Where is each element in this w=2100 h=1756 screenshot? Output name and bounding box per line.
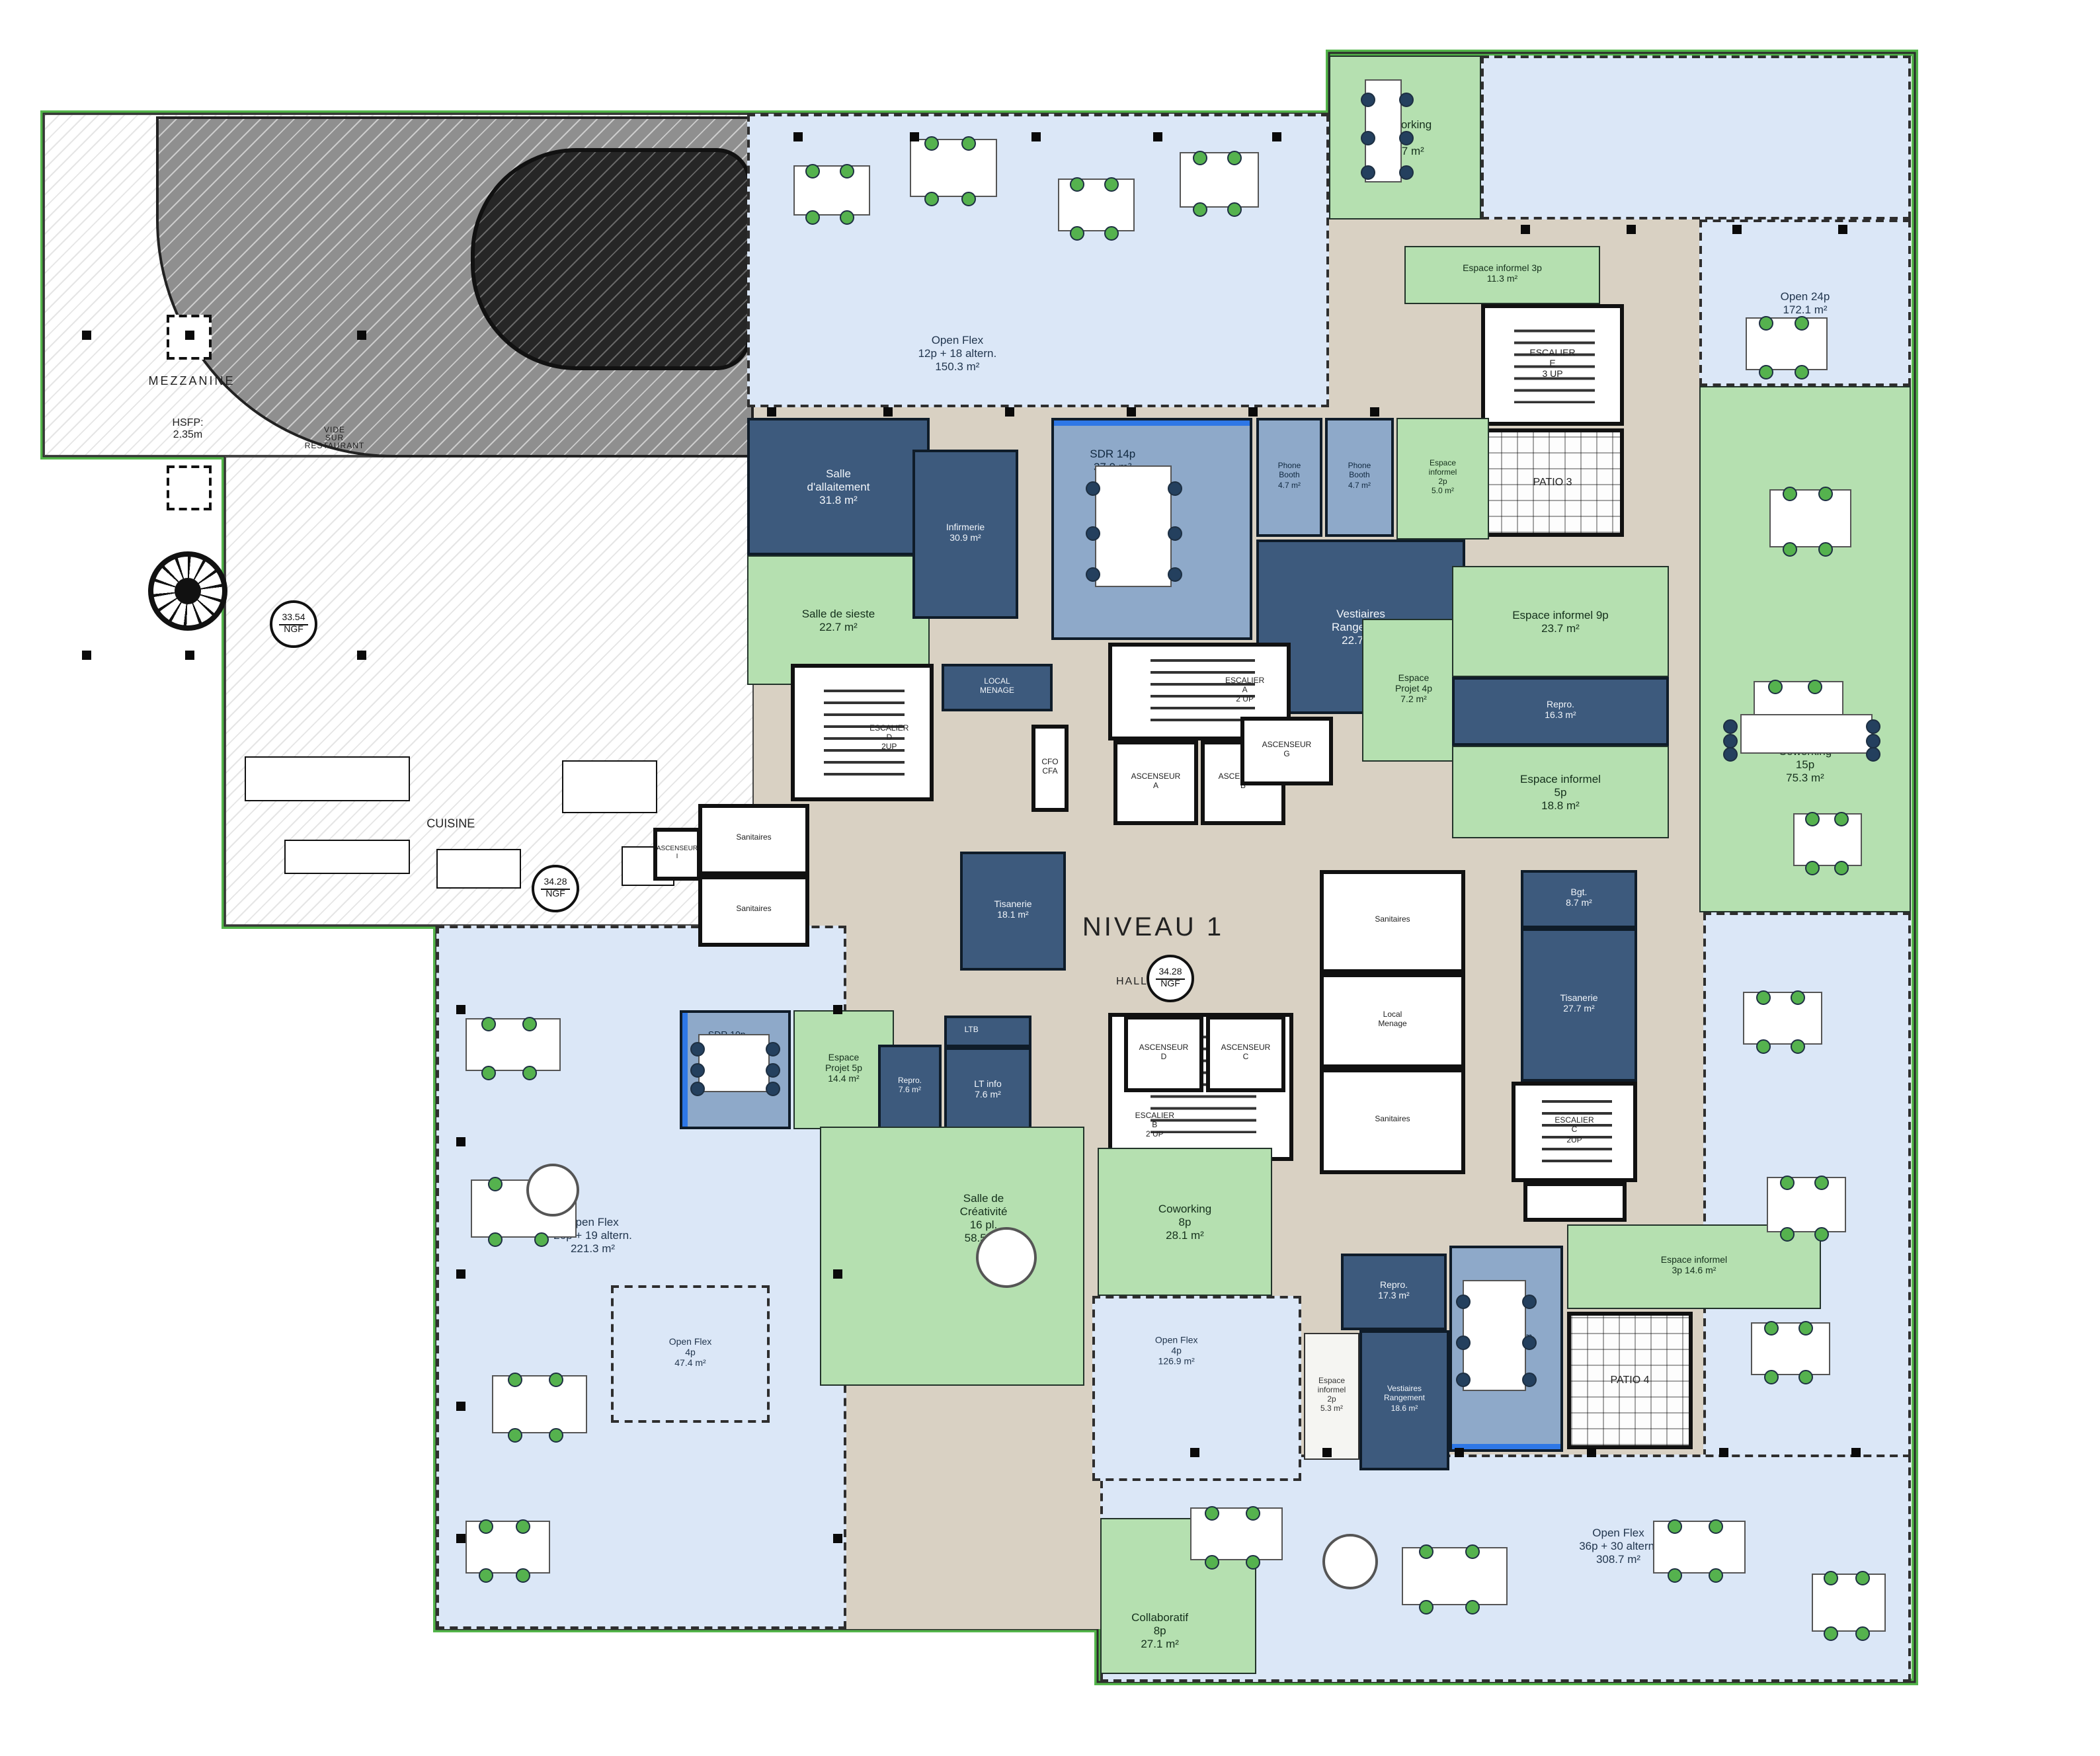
hall-label: HALL [1116,975,1148,987]
room-cfo-cfa: CFOCFA [1031,725,1069,812]
room-espace-informel-2p-south: Espaceinformel2p5.3 m² [1304,1333,1359,1460]
structural-column-dot [767,407,776,417]
structural-column-dot [185,331,194,340]
structural-column-dot [1031,132,1041,141]
escalier-a-label: ESCALIER [1225,678,1264,687]
structural-column-dot [357,651,366,660]
room-lt-info: LT info7.6 m² [944,1047,1031,1135]
chair-green-icon [1668,1519,1682,1533]
ltb-label: LTB [965,1027,979,1036]
open-flex-north-label: 150.3 m² [918,360,997,373]
chair-green-icon [1759,365,1773,379]
ngf-hall-unit: NGF [1160,979,1180,989]
structural-column-dot [1455,1448,1464,1457]
structural-column-dot [456,1402,465,1411]
chair-dark-icon [1455,1295,1470,1309]
structural-column-dot [1521,225,1530,234]
vide-sur-restaurant-label: VIDE SUR RESTAURANT [305,427,364,451]
salle-allaitement-label: d'allaitement [807,480,870,493]
desk-cluster [910,139,997,197]
chair-green-icon [1814,1175,1829,1189]
sanitaires-central-2-label: Sanitaires [1375,1117,1410,1126]
salle-de-sieste-label: Salle de sieste [802,607,875,620]
open-flex-north-label: Open Flex [918,333,997,346]
espace-projet-5p-label: Projet 5p [825,1064,862,1076]
room-ascenseur-c: ASCENSEURC [1206,1016,1285,1092]
structural-column-dot [185,651,194,660]
room-tisanerie-18: Tisanerie18.1 m² [960,852,1066,971]
espace-informel-2p-south-label: informel [1318,1387,1346,1396]
chair-dark-icon [1086,526,1100,541]
desk-cluster [793,165,870,216]
ngf-hall-value: 34.28 [1156,968,1184,979]
chair-dark-icon [1399,165,1414,180]
phone-booth-2-label: Booth [1348,473,1371,482]
spiral-stair-icon [148,551,227,631]
chair-green-icon [839,210,854,225]
structural-column-dot [1127,407,1136,417]
mezzanine-label: MEZZANINE [148,374,235,387]
espace-informel-9p-label: 23.7 m² [1512,621,1609,635]
collaboratif-8p-label: 8p [1131,1623,1188,1636]
tisanerie-27-label: Tisanerie [1560,994,1597,1006]
chair-dark-icon [1361,93,1376,107]
room-escalier-e: ESCALIERE3 UP [1481,304,1624,426]
structural-column-dot [1272,132,1281,141]
room-salle-allaitement: Salled'allaitement31.8 m² [747,418,930,555]
chair-green-icon [487,1177,502,1192]
structural-column-dot [456,1534,465,1543]
chair-dark-icon [766,1063,780,1078]
salle-creativite-label: Créativité [960,1205,1008,1218]
chair-green-icon [1807,679,1822,694]
room-phone-booth-1: PhoneBooth4.7 m² [1256,418,1322,537]
chair-green-icon [1070,177,1085,191]
vestiaires-rangement-south-label: Vestiaires [1384,1386,1425,1396]
bgt-label: Bgt. [1566,889,1592,900]
chair-green-icon [1824,1572,1838,1586]
escalier-b-label: B [1135,1121,1174,1131]
round-table [1322,1534,1378,1589]
open-flex-4p-126-label: Open Flex [1155,1336,1198,1347]
espace-projet-4p-label: 7.2 m² [1395,696,1432,707]
room-ascenseur-a: ASCENSEURA [1113,740,1198,825]
room-repro-16: Repro.16.3 m² [1452,677,1669,746]
room-escalier-c-annex [1523,1182,1627,1222]
chair-green-icon [507,1427,522,1442]
chair-dark-icon [1168,567,1182,581]
meeting-table [1365,79,1402,182]
espace-projet-4p-label: Espace [1395,674,1432,685]
room-infirmerie: Infirmerie30.9 m² [912,450,1018,619]
phone-booth-1-label: Booth [1278,473,1301,482]
open-flex-4p-47-label: 47.4 m² [669,1359,712,1371]
ascenseur-g-label: ASCENSEUR [1262,742,1312,751]
structural-column-dot [1190,1448,1199,1457]
chair-green-icon [839,164,854,179]
chair-green-icon [1834,811,1849,826]
coworking-15p-label: 75.3 m² [1779,771,1832,784]
espace-informel-3p-north-label: 11.3 m² [1463,275,1542,286]
room-ascenseur-g: ASCENSEURG [1240,717,1333,785]
room-salle-creativite: Salle deCréativité16 pl.58.5 m² [820,1127,1084,1386]
structural-column-dot [1587,1448,1596,1457]
chair-green-icon [1856,1572,1871,1586]
floorplan-niveau-1: Open Flex12p + 18 altern.150.3 m²Open 24… [0,0,2100,1756]
espace-informel-5p-label: 5p [1520,785,1601,799]
structural-column-dot [1732,225,1742,234]
chair-green-icon [1795,315,1809,330]
repro-17-label: Repro. [1378,1281,1409,1293]
chair-green-icon [522,1066,537,1080]
chair-green-icon [1418,1599,1433,1614]
chair-green-icon [1779,1227,1794,1242]
room-repro-7: Repro.7.6 m² [878,1045,942,1129]
escalier-a-label: 2 UP [1225,696,1264,705]
structural-column-dot [833,1269,842,1279]
chair-green-icon [487,1232,502,1246]
chair-green-icon [1768,679,1783,694]
chair-green-icon [1246,1505,1260,1520]
mezzanine-dashed-square [167,465,212,510]
structural-column-dot [1627,225,1636,234]
structural-column-dot [793,132,803,141]
chair-green-icon [1418,1545,1433,1560]
desk-cluster [1812,1574,1886,1632]
chair-green-icon [1798,1320,1813,1335]
chair-green-icon [962,137,977,151]
espace-informel-2p-north-label: Espace [1429,460,1457,469]
espace-projet-5p-label: Espace [825,1053,862,1064]
meeting-table [1740,714,1873,754]
collaboratif-8p-label: 27.1 m² [1131,1636,1188,1650]
chair-green-icon [1791,1039,1805,1054]
chair-green-icon [924,191,938,206]
round-table [976,1227,1037,1288]
chair-green-icon [1783,541,1797,556]
round-table [526,1164,579,1217]
chair-green-icon [1763,1370,1778,1384]
escalier-c-label: 2UP [1555,1137,1594,1146]
local-menage-1-label: MENAGE [980,688,1014,697]
chair-green-icon [1804,811,1819,826]
chair-green-icon [1818,541,1833,556]
infirmerie-label: Infirmerie [946,524,985,535]
vestiaires-rangement-north-label: Vestiaires [1332,607,1390,620]
room-espace-informel-3p-north: Espace informel 3p11.3 m² [1404,246,1600,304]
chair-dark-icon [1522,1295,1537,1309]
hsfp-label: HSFP: 2.35m [172,417,203,440]
room-sanitaires-central-1: Sanitaires [1320,870,1465,973]
chair-green-icon [1246,1555,1260,1570]
chair-green-icon [1759,315,1773,330]
escalier-d-label: D [869,735,909,744]
structural-column-dot [1851,1448,1861,1457]
chair-dark-icon [1866,734,1880,748]
sanitaires-central-1-label: Sanitaires [1375,917,1410,926]
chair-green-icon [1791,990,1805,1004]
room-open-24p-band [1481,56,1911,219]
coworking-8p-label: 28.1 m² [1158,1228,1211,1242]
repro-17-label: 17.3 m² [1378,1292,1409,1303]
cfo-cfa-label: CFO [1041,759,1058,768]
chair-dark-icon [1522,1373,1537,1387]
room-vestiaires-rangement-south: VestiairesRangement18.6 m² [1359,1330,1449,1470]
tisanerie-18-label: Tisanerie [994,900,1031,912]
chair-dark-icon [690,1063,704,1078]
repro-16-label: 16.3 m² [1545,711,1576,723]
chair-dark-icon [1086,481,1100,496]
structural-column-dot [1005,407,1014,417]
escalier-b-label: ESCALIER [1135,1112,1174,1121]
structural-column-dot [883,407,893,417]
chair-green-icon [1227,150,1242,165]
room-escalier-d: ESCALIERD2UP [791,664,934,801]
cfo-cfa-label: CFA [1041,768,1058,778]
espace-informel-2p-south-label: Espace [1318,1378,1346,1387]
chair-green-icon [534,1232,549,1246]
room-bgt: Bgt.8.7 m² [1521,870,1637,928]
chair-green-icon [1192,150,1207,165]
room-espace-informel-9p: Espace informel 9p23.7 m² [1452,566,1669,677]
chair-green-icon [1205,1505,1219,1520]
salle-creativite-label: Salle de [960,1191,1008,1205]
ngf-cuisine-unit: NGF [545,889,565,899]
bgt-label: 8.7 m² [1566,899,1592,910]
espace-informel-3p-north-label: Espace informel 3p [1463,264,1542,276]
chair-green-icon [1709,1519,1723,1533]
chair-green-icon [1756,990,1770,1004]
room-espace-informel-5p: Espace informel5p18.8 m² [1452,746,1669,838]
chair-green-icon [479,1519,494,1533]
structural-column-dot [82,331,91,340]
chair-green-icon [1783,487,1797,502]
open-flex-se-label: 308.7 m² [1579,1552,1658,1566]
open-flex-se-label: Open Flex [1579,1526,1658,1539]
salle-de-sieste-label: 22.7 m² [802,620,875,633]
room-patio-3: PATIO 3 [1481,428,1624,537]
desk-cluster [1746,317,1828,370]
chair-green-icon [1709,1568,1723,1583]
ngf-cuisine-value: 34.28 [541,878,569,889]
open-flex-4p-47-label: 4p [669,1349,712,1360]
chair-green-icon [1465,1599,1480,1614]
repro-7-label: Repro. [898,1078,922,1087]
espace-informel-3p-south-label: 3p 14.6 m² [1661,1267,1727,1278]
cuisine-label: CUISINE [426,817,475,830]
desk-cluster [1190,1507,1283,1560]
meeting-table [1095,465,1172,587]
chair-green-icon [1798,1370,1813,1384]
chair-green-icon [962,191,977,206]
ngf-cuisine: 34.28NGF [532,865,579,912]
structural-column-dot [1153,132,1162,141]
tisanerie-27-label: 27.7 m² [1560,1005,1597,1016]
coworking-15p-label: 15p [1779,758,1832,771]
escalier-d-label: ESCALIER [869,725,909,735]
escalier-e-label: E [1529,360,1575,371]
espace-informel-3p-south-label: Espace informel [1661,1256,1727,1267]
room-sanitaires-central-2: Sanitaires [1320,1068,1465,1174]
patio-3-label: PATIO 3 [1533,477,1572,489]
chair-dark-icon [1399,93,1414,107]
espace-informel-2p-north-label: 2p [1429,479,1457,488]
structural-column-dot [910,132,919,141]
chair-green-icon [1804,861,1819,875]
desk-cluster [492,1375,587,1433]
phone-booth-2-label: 4.7 m² [1348,482,1371,491]
room-phone-booth-2: PhoneBooth4.7 m² [1325,418,1394,537]
meeting-table [698,1034,770,1092]
phone-booth-1-label: Phone [1278,463,1301,473]
desk-cluster [465,1018,561,1071]
chair-dark-icon [1086,567,1100,581]
escalier-d-label: 2UP [869,744,909,753]
chair-dark-icon [1168,481,1182,496]
chair-green-icon [516,1519,530,1533]
room-patio-4: PATIO 4 [1567,1312,1693,1449]
structural-column-dot [833,1005,842,1014]
ascenseur-c-label: C [1221,1054,1271,1063]
desk-cluster [465,1521,550,1574]
vestiaires-rangement-south-label: 18.6 m² [1384,1405,1425,1414]
lt-info-label: LT info [974,1080,1002,1092]
chair-green-icon [1824,1626,1838,1640]
ngf-mezzanine: 33.54NGF [270,600,317,648]
chair-green-icon [1814,1227,1829,1242]
ngf-mezzanine-unit: NGF [284,625,303,635]
espace-informel-5p-label: Espace informel [1520,772,1601,785]
vide-dark-oval [471,148,751,370]
ngf-hall: 34.28NGF [1147,955,1194,1002]
salle-allaitement-label: Salle [807,467,870,480]
open-24p-label: 172.1 m² [1781,303,1830,316]
structural-column-dot [357,331,366,340]
chair-dark-icon [690,1042,704,1057]
open-flex-sw-label: 221.3 m² [553,1242,632,1256]
structural-column-dot [1838,225,1847,234]
desk-cluster [1767,1177,1846,1232]
open-flex-north-label: 12p + 18 altern. [918,346,997,359]
ascenseur-d-label: D [1139,1054,1189,1063]
chair-dark-icon [1866,746,1880,761]
espace-projet-5p-label: 14.4 m² [825,1075,862,1086]
room-cuisine: CUISINE [231,743,754,926]
room-coworking-8p: Coworking8p28.1 m² [1098,1148,1272,1296]
ascenseur-a-label: ASCENSEUR [1131,774,1181,783]
room-ascenseur-d: ASCENSEURD [1124,1016,1203,1092]
structural-column-dot [456,1269,465,1279]
espace-informel-2p-south-label: 2p [1318,1396,1346,1406]
chair-green-icon [1856,1626,1871,1640]
chair-dark-icon [1455,1373,1470,1387]
chair-green-icon [1795,365,1809,379]
ascenseur-c-label: ASCENSEUR [1221,1045,1271,1054]
structural-column-dot [833,1534,842,1543]
chair-green-icon [1192,202,1207,217]
room-local-menage-1: LOCALMENAGE [942,664,1053,711]
desk-cluster [1743,992,1822,1045]
desk-cluster [1769,489,1851,547]
escalier-c-label: C [1555,1127,1594,1137]
salle-allaitement-label: 31.8 m² [807,493,870,506]
escalier-a-label: A [1225,687,1264,696]
room-repro-17: Repro.17.3 m² [1341,1254,1447,1330]
chair-green-icon [481,1066,495,1080]
repro-16-label: Repro. [1545,701,1576,712]
chair-dark-icon [1399,131,1414,145]
chair-green-icon [924,137,938,151]
tisanerie-18-label: 18.1 m² [994,911,1031,922]
lt-info-label: 7.6 m² [974,1091,1002,1102]
desk-cluster [1793,813,1862,866]
chair-green-icon [1465,1545,1480,1560]
ascenseur-g-label: G [1262,751,1312,760]
chair-dark-icon [1361,131,1376,145]
chair-green-icon [1834,861,1849,875]
local-menage-2-label: Menage [1378,1021,1406,1030]
espace-informel-2p-south-label: 5.3 m² [1318,1406,1346,1415]
room-ltb: LTB [944,1016,1031,1047]
chair-green-icon [1104,177,1118,191]
ngf-mezzanine-value: 33.54 [279,614,307,625]
escalier-e-label: ESCALIER [1529,348,1575,360]
chair-dark-icon [1361,165,1376,180]
chair-green-icon [1779,1175,1794,1189]
local-menage-2-label: Local [1378,1012,1406,1021]
niveau-title: NIVEAU 1 [1082,913,1224,943]
espace-projet-4p-label: Projet 4p [1395,685,1432,696]
open-24p-label: Open 24p [1781,290,1830,303]
structural-column-dot [1248,407,1258,417]
escalier-b-label: 2 UP [1135,1131,1174,1140]
room-espace-informel-2p-north: Espaceinformel2p5.0 m² [1396,418,1489,539]
chair-green-icon [1763,1320,1778,1335]
chair-green-icon [481,1016,495,1031]
chair-green-icon [1756,1039,1770,1054]
room-open-flex-4p-47: Open Flex4p47.4 m² [611,1285,770,1423]
espace-informel-5p-label: 18.8 m² [1520,799,1601,812]
desk-cluster [1653,1521,1746,1574]
phone-booth-1-label: 4.7 m² [1278,482,1301,491]
chair-green-icon [806,164,821,179]
room-escalier-c: ESCALIERC2UP [1512,1082,1637,1182]
room-local-menage-2: LocalMenage [1320,973,1465,1068]
escalier-e-label: 3 UP [1529,370,1575,381]
structural-column-dot [1322,1448,1332,1457]
vestiaires-rangement-south-label: Rangement [1384,1396,1425,1405]
chair-green-icon [1104,226,1118,241]
open-flex-4p-47-label: Open Flex [669,1337,712,1349]
ascenseur-a-label: A [1131,783,1181,792]
sdr-14p-label: SDR 14p [1090,446,1135,459]
chair-dark-icon [1168,526,1182,541]
local-menage-1-label: LOCAL [980,678,1014,688]
repro-7-label: 7.6 m² [898,1087,922,1096]
chair-green-icon [1818,487,1833,502]
structural-column-dot [82,651,91,660]
open-flex-4p-126-label: 4p [1155,1347,1198,1358]
coworking-8p-label: 8p [1158,1215,1211,1228]
room-espace-projet-4p: EspaceProjet 4p7.2 m² [1362,619,1465,762]
escalier-c-label: ESCALIER [1555,1118,1594,1127]
espace-informel-2p-north-label: 5.0 m² [1429,488,1457,497]
patio-4-label: PATIO 4 [1611,1375,1650,1387]
desk-cluster [1180,152,1259,208]
ascenseur-d-label: ASCENSEUR [1139,1045,1189,1054]
chair-green-icon [507,1373,522,1388]
open-flex-se-label: 36p + 30 altern. [1579,1539,1658,1552]
